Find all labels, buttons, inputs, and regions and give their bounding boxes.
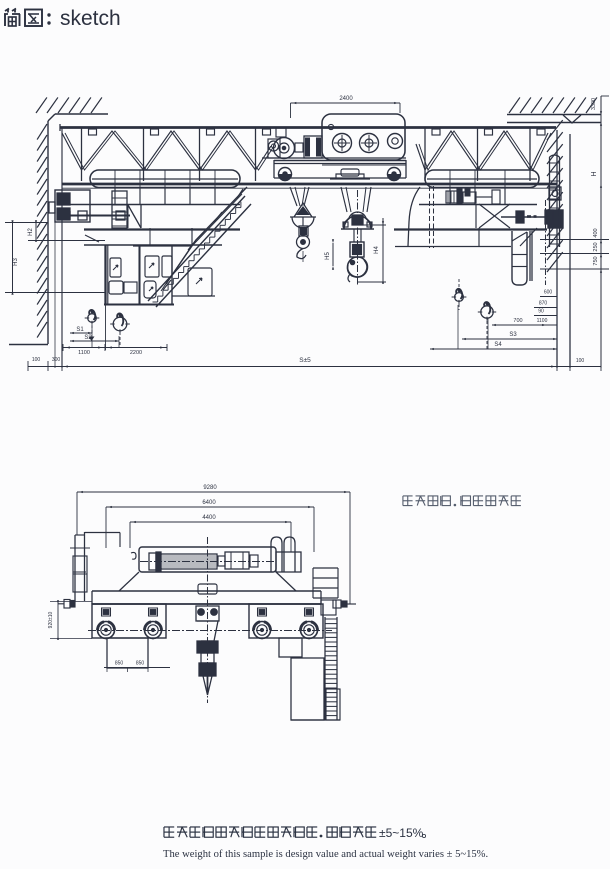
svg-text:870: 870 [539, 301, 548, 307]
svg-text:S3: S3 [509, 332, 517, 338]
svg-text:3300: 3300 [591, 98, 597, 110]
svg-text:H: H [591, 171, 598, 176]
svg-text:100: 100 [32, 357, 41, 363]
svg-text:H2: H2 [28, 228, 34, 236]
svg-text:850: 850 [136, 661, 145, 667]
svg-text:2200: 2200 [130, 350, 142, 356]
svg-text:S2: S2 [84, 335, 92, 341]
svg-text:±5~15%: ±5~15% [379, 826, 424, 840]
svg-text:H4: H4 [374, 246, 380, 254]
svg-text:6400: 6400 [202, 500, 216, 506]
svg-text:600: 600 [544, 290, 553, 296]
svg-text:250: 250 [593, 242, 599, 251]
svg-text:S4: S4 [494, 342, 502, 348]
svg-text:920±10: 920±10 [48, 611, 54, 628]
svg-text:750: 750 [593, 256, 599, 265]
svg-text:4400: 4400 [202, 515, 216, 521]
svg-text:100: 100 [576, 358, 585, 364]
svg-text:2400: 2400 [339, 96, 353, 102]
svg-text:sketch: sketch [60, 7, 121, 30]
svg-text:400: 400 [593, 228, 599, 237]
svg-text:300: 300 [52, 357, 61, 363]
svg-text:9280: 9280 [203, 485, 217, 491]
svg-text:1100: 1100 [78, 350, 90, 356]
svg-text:850: 850 [115, 661, 124, 667]
svg-text:The weight of this sample is: The weight of this sample is design valu… [163, 849, 488, 860]
svg-text:S±5: S±5 [299, 357, 311, 364]
svg-text:90: 90 [538, 309, 544, 315]
svg-text:S1: S1 [76, 327, 84, 333]
svg-text:H5: H5 [325, 252, 331, 260]
svg-text:1100: 1100 [537, 318, 548, 324]
svg-text:700: 700 [513, 318, 522, 324]
svg-text:H3: H3 [13, 258, 19, 266]
